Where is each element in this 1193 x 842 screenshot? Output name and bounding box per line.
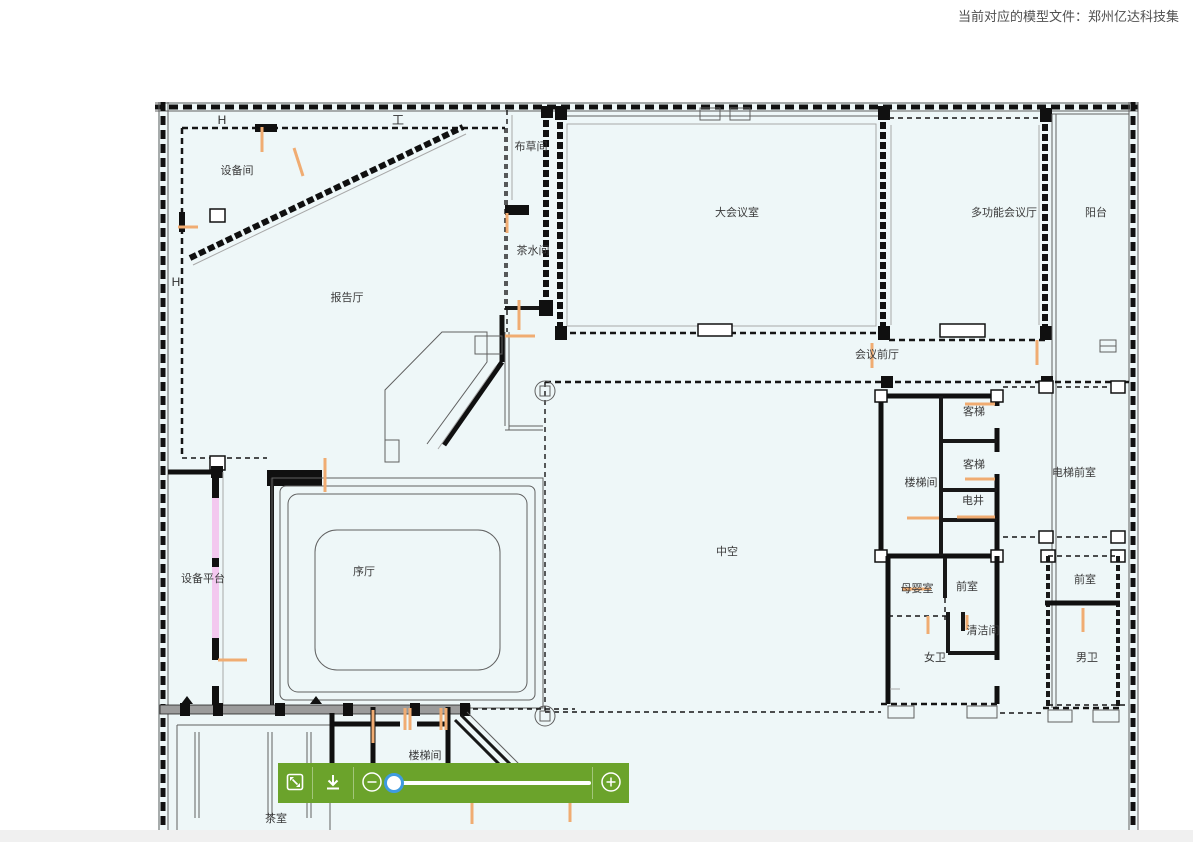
room-label-tea-lounge: 茶室: [265, 811, 287, 825]
fit-screen-icon: [285, 772, 305, 795]
floor-plan-canvas[interactable]: H 工 H 设备间 报告厅 布草间 茶水间 大会议室 多功能会议厅 阳台 会议前…: [155, 100, 1140, 830]
grid-marker-gong: 工: [392, 113, 404, 127]
viewer-toolbar: [278, 763, 629, 803]
room-label-pantry: 茶水间: [517, 244, 550, 257]
model-file-label: 当前对应的模型文件：郑州亿达科技集: [958, 6, 1179, 25]
zoom-in-button[interactable]: [593, 763, 629, 803]
grid-marker-h2: H: [172, 275, 181, 289]
zoom-out-button[interactable]: [358, 763, 386, 803]
room-label-lower-stairwell: 楼梯间: [409, 748, 442, 762]
room-label-lecture-hall: 报告厅: [331, 290, 364, 304]
grid-marker-h1: H: [218, 113, 227, 127]
room-label-linen-room: 布草间: [515, 140, 548, 153]
room-label-electrical-shaft: 电井: [962, 493, 984, 507]
zoom-in-icon: [600, 771, 622, 796]
room-label-passenger-lift-1: 客梯: [963, 404, 985, 418]
bottom-strip: [0, 830, 1193, 842]
zoom-slider-track[interactable]: [390, 781, 591, 785]
room-label-grand-conference: 大会议室: [715, 205, 759, 219]
room-label-balcony: 阳台: [1085, 205, 1107, 219]
floor-plan-svg: H 工 H 设备间 报告厅 布草间 茶水间 大会议室 多功能会议厅 阳台 会议前…: [155, 100, 1140, 830]
room-label-anteroom-left: 前室: [956, 579, 978, 593]
fit-screen-button[interactable]: [278, 763, 312, 803]
toolbar-divider-2: [353, 767, 354, 799]
room-label-mens-toilet: 男卫: [1076, 652, 1098, 664]
room-label-womens-toilet: 女卫: [924, 650, 946, 664]
room-label-foyer-hall: 序厅: [353, 564, 375, 578]
download-icon: [323, 772, 343, 795]
room-label-upper-stairwell: 楼梯间: [905, 475, 938, 489]
zoom-out-icon: [361, 771, 383, 796]
room-label-anteroom-right: 前室: [1074, 572, 1096, 586]
room-label-equipment-platform: 设备平台: [181, 571, 225, 585]
room-label-nursing-room: 母婴室: [901, 581, 934, 595]
room-label-cleaning-room: 清洁间: [967, 624, 1000, 637]
page: { "header": { "model_file_text": "当前对应的模…: [0, 0, 1193, 842]
room-label-multifunction-hall: 多功能会议厅: [971, 205, 1037, 219]
download-button[interactable]: [313, 763, 353, 803]
room-label-atrium-void: 中空: [716, 544, 738, 558]
room-label-passenger-lift-2: 客梯: [963, 457, 985, 471]
room-label-equipment-room: 设备间: [221, 163, 254, 177]
room-label-elevator-lobby: 电梯前室: [1052, 465, 1096, 479]
zoom-slider-handle[interactable]: [384, 773, 404, 793]
room-label-conference-foyer: 会议前厅: [855, 347, 899, 361]
